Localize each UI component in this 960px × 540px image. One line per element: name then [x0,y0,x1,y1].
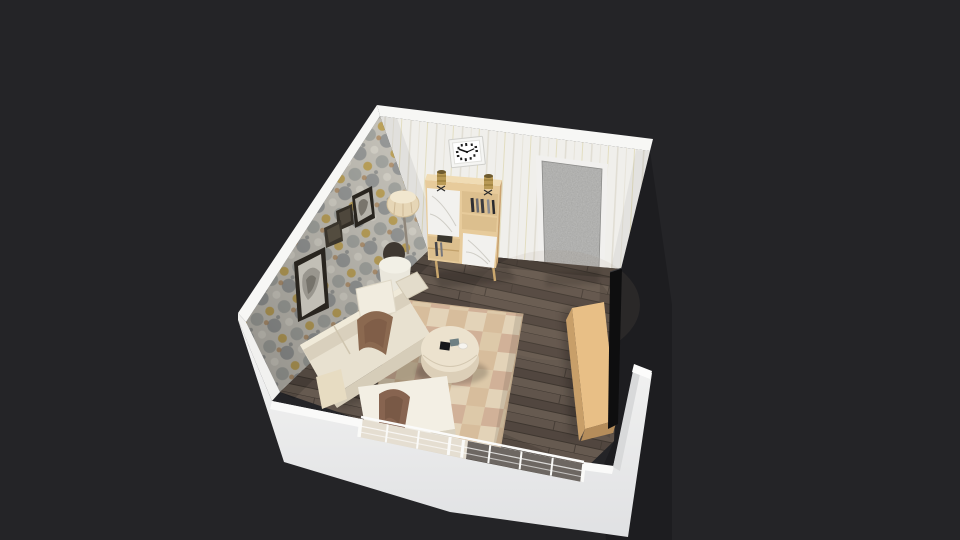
wall-clock [449,136,486,167]
table-book-black [439,341,450,350]
table-dish [459,343,468,349]
room-render [0,0,960,540]
marble-door-top [427,188,460,237]
table-book-teal [450,338,460,346]
3d-viewport[interactable] [0,0,960,540]
